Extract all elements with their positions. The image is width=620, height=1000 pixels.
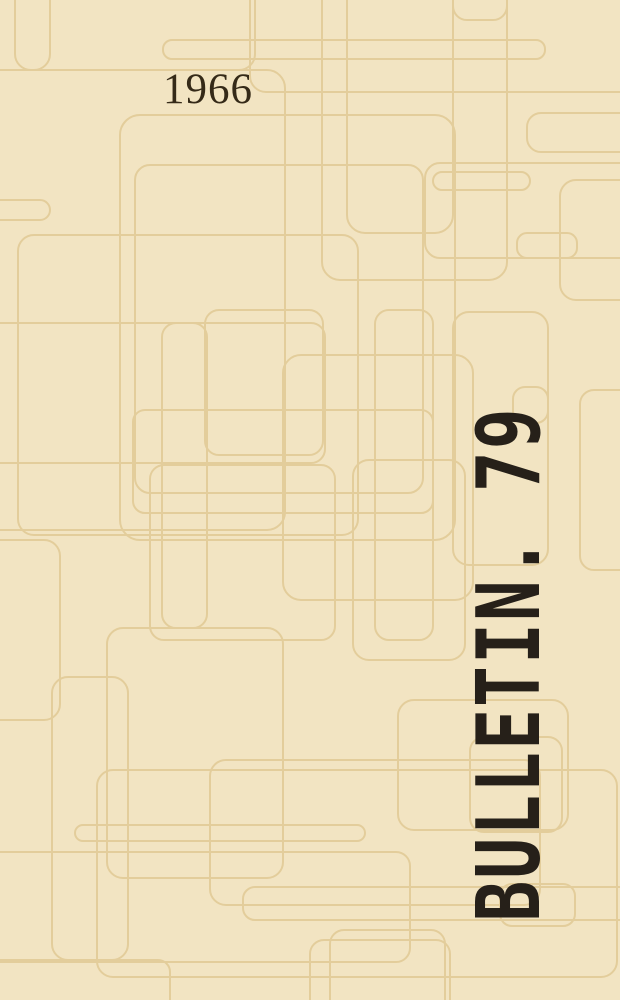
pattern-rect	[433, 172, 530, 190]
pattern-rect	[560, 180, 620, 300]
pattern-rect	[375, 310, 433, 640]
pattern-rect	[162, 323, 207, 628]
pattern-rect	[52, 677, 128, 960]
pattern-rect	[580, 390, 620, 570]
pattern-rect	[283, 355, 473, 600]
pattern-rect	[0, 960, 170, 1000]
pattern-rect	[517, 233, 577, 258]
bulletin-cover: 1966 BULLETIN. 79	[0, 0, 620, 1000]
pattern-rect	[453, 0, 507, 20]
year-label: 1966	[163, 68, 253, 111]
pattern-rect	[135, 165, 423, 493]
pattern-rect	[150, 465, 335, 640]
pattern-rect	[527, 113, 620, 152]
pattern-rect	[0, 200, 50, 220]
pattern-rect	[250, 0, 620, 92]
pattern-rect	[243, 887, 620, 920]
pattern-rect	[353, 460, 465, 660]
pattern-rect	[0, 0, 50, 70]
pattern-rect	[0, 70, 285, 530]
pattern-rect	[0, 852, 410, 962]
pattern-rect	[18, 235, 358, 535]
pattern-rect	[205, 310, 323, 455]
pattern-rect	[163, 40, 545, 59]
pattern-rect	[347, 0, 453, 233]
pattern-rect	[75, 825, 365, 841]
title-label: BULLETIN. 79	[467, 406, 554, 921]
pattern-rect	[120, 115, 455, 540]
